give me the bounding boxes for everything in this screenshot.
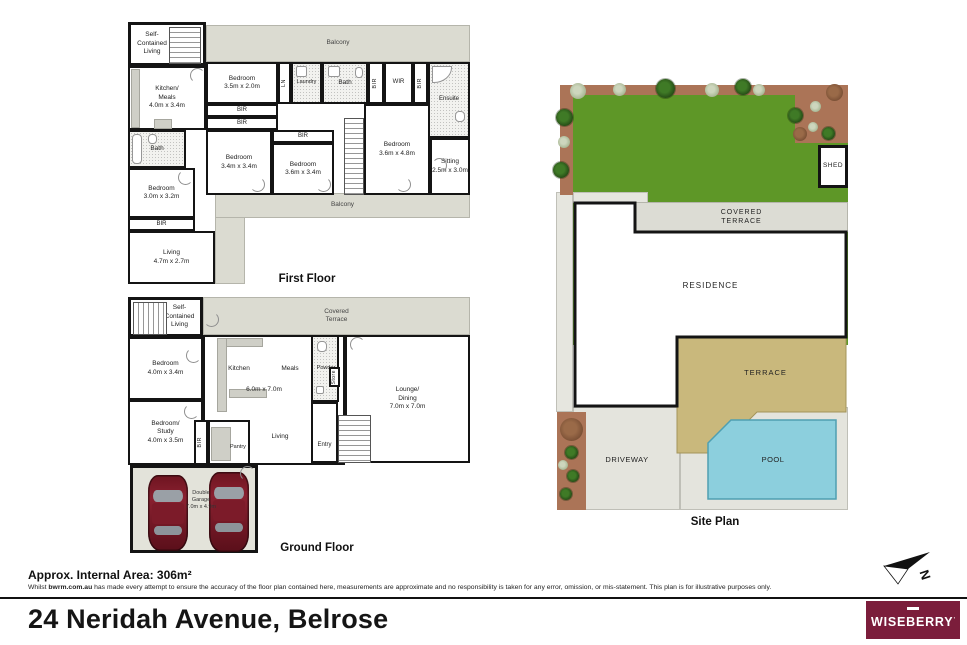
room-label: WIR — [393, 79, 405, 87]
ff-bath-left: Bath — [128, 130, 186, 168]
rear-window — [215, 523, 243, 532]
room-label: Bedroom 3.0m x 3.2m — [144, 185, 180, 202]
ff-bath-middle: Bath — [322, 62, 368, 104]
door-arc — [186, 348, 201, 363]
room-label: Lounge/ Dining 7.0m x 7.0m — [390, 386, 426, 411]
stairs-icon — [133, 302, 167, 335]
area-label: SHED — [823, 162, 843, 170]
room-label: BIR — [156, 221, 166, 229]
toilet-icon — [317, 341, 327, 352]
ff-bir-b: BIR — [206, 117, 278, 130]
gf-self-contained-living: Self- Contained Living — [128, 297, 203, 337]
sp-shed: SHED — [818, 145, 848, 188]
gf-store: Store — [329, 367, 340, 387]
ground-floor-title: Ground Floor — [252, 542, 382, 554]
stairs-icon — [169, 27, 201, 64]
pantry-shelf — [211, 427, 231, 461]
kitchen-counter — [217, 338, 227, 412]
floorplan-page: Balcony Balcony Self- Contained Living K… — [0, 0, 967, 645]
door-arc — [396, 177, 411, 192]
room-label: Bath — [338, 79, 351, 87]
toilet-icon — [455, 111, 465, 122]
ff-linen-closet: LN — [278, 62, 291, 104]
room-label: BIR — [197, 437, 204, 448]
logo-bar-icon — [907, 607, 919, 610]
gf-bedroom-4-0x3-4: Bedroom 4.0m x 3.4m — [128, 337, 203, 400]
room-label: Ensuite — [439, 96, 459, 104]
gf-bir: BIR — [194, 420, 208, 465]
room-label: Living — [258, 433, 302, 441]
divider-line — [0, 597, 967, 599]
door-arc — [316, 177, 331, 192]
room-label: BIR — [298, 133, 308, 141]
corner-bath-icon — [432, 66, 452, 83]
car-icon — [148, 475, 188, 551]
car-roof — [213, 500, 245, 521]
ff-balcony-bottom: Balcony — [215, 193, 470, 218]
room-label: Bedroom 4.0m x 3.4m — [148, 360, 184, 377]
room-label: BIR — [417, 78, 424, 89]
gf-entry: Entry — [311, 402, 338, 463]
disclaimer-text: Whilst bwrm.com.au has made every attemp… — [28, 584, 771, 591]
ff-living: Living 4.7m x 2.7m — [128, 231, 215, 284]
room-label: Covered Terrace — [324, 308, 349, 325]
site-plan-outlines — [550, 80, 855, 515]
gf-pantry: Pantry — [208, 420, 250, 465]
room-label: Kitchen/ Meals 4.0m x 3.4m — [149, 85, 185, 110]
door-arc — [250, 177, 265, 192]
basin-icon — [316, 386, 324, 394]
kitchen-counter — [131, 69, 140, 128]
room-label: LN — [281, 79, 288, 87]
room-label: Bedroom 3.5m x 2.0m — [224, 75, 260, 92]
room-label: Bedroom 3.6m x 4.8m — [379, 141, 415, 158]
door-arc — [178, 170, 193, 185]
car-roof — [152, 503, 184, 524]
room-label: Living 4.7m x 2.7m — [154, 249, 190, 266]
room-label: Bedroom/ Study 4.0m x 3.5m — [148, 420, 184, 445]
ff-bir-a: BIR — [206, 104, 278, 117]
ff-bir-1: BIR — [368, 62, 384, 104]
shower-icon — [328, 66, 340, 77]
disclaimer-prefix: Whilst — [28, 584, 48, 591]
first-floor-title: First Floor — [247, 273, 367, 285]
north-arrow-light — [884, 566, 908, 584]
room-label: Pantry — [230, 444, 246, 451]
ff-bedroom-3-5x2-0: Bedroom 3.5m x 2.0m — [206, 62, 278, 104]
room-label: Self- Contained Living — [137, 31, 167, 56]
ff-bir-c: BIR — [272, 130, 334, 143]
residence-label: RESIDENCE — [648, 281, 773, 290]
door-arc — [350, 337, 365, 352]
room-label: Meals — [268, 365, 312, 373]
pool-label: POOL — [752, 455, 794, 464]
room-label: Laundry — [297, 79, 317, 86]
door-arc — [184, 404, 199, 419]
ff-balcony-top: Balcony — [206, 25, 470, 62]
disclaimer-site: bwrm.com.au — [48, 584, 92, 591]
approx-area-text: Approx. Internal Area: 306m² — [28, 568, 192, 582]
car-icon — [209, 472, 249, 552]
room-label: Balcony — [331, 201, 354, 209]
ff-bir-d: BIR — [128, 218, 195, 231]
toilet-icon — [355, 67, 363, 78]
driveway-label: DRIVEWAY — [596, 455, 658, 464]
windshield — [214, 487, 244, 499]
gf-double-garage: Double Garage 7.0m x 4.9m — [130, 465, 258, 553]
disclaimer-rest: has made every attempt to ensure the acc… — [92, 584, 771, 591]
terrace-label: TERRACE — [733, 368, 798, 377]
room-label: Kitchen — [217, 365, 261, 373]
stove-icon — [154, 119, 172, 129]
north-arrow-dark — [884, 552, 930, 569]
room-label: BIR — [372, 78, 379, 89]
room-label: Balcony — [326, 39, 349, 47]
ff-wir: WIR — [384, 62, 413, 104]
room-label: Entry — [317, 442, 331, 450]
door-arc — [432, 158, 447, 173]
rear-window — [154, 526, 182, 535]
room-label: Store — [331, 370, 338, 384]
property-address: 24 Neridah Avenue, Belrose — [28, 604, 388, 635]
room-label: Self- Contained Living — [165, 304, 195, 329]
room-label: Bedroom 3.6m x 3.4m — [285, 161, 321, 178]
ff-laundry: Laundry — [291, 62, 322, 104]
room-label: BIR — [237, 120, 247, 128]
ff-bir-2: BIR — [413, 62, 428, 104]
wiseberry-logo: WISEBERRY ’ — [866, 601, 960, 639]
ff-self-contained-living: Self- Contained Living — [128, 22, 206, 66]
site-plan-title: Site Plan — [684, 516, 746, 528]
door-arc — [240, 466, 255, 481]
gf-powder-room: Powder Store — [311, 335, 339, 402]
door-arc — [204, 312, 219, 327]
room-dimension-label: 6.0m x 7.0m — [240, 386, 288, 394]
windshield — [153, 490, 183, 502]
gf-covered-terrace: Covered Terrace — [203, 297, 470, 335]
ff-ensuite: Ensuite — [428, 62, 470, 138]
room-label: BIR — [237, 107, 247, 115]
stairs-icon — [344, 118, 364, 195]
laundry-tub-icon — [296, 66, 307, 77]
bathtub-icon — [132, 134, 142, 164]
room-label: Bedroom 3.4m x 3.4m — [221, 154, 257, 171]
room-label: Double Garage 7.0m x 4.9m — [185, 490, 217, 511]
stairs-icon — [338, 415, 371, 463]
logo-mark: ’ — [953, 617, 955, 624]
logo-text: WISEBERRY — [871, 615, 953, 629]
north-label: N — [916, 568, 933, 582]
toilet-icon — [148, 134, 157, 144]
north-arrow-icon: N — [876, 548, 940, 592]
door-arc — [190, 68, 205, 83]
room-label: Bath — [150, 145, 163, 153]
